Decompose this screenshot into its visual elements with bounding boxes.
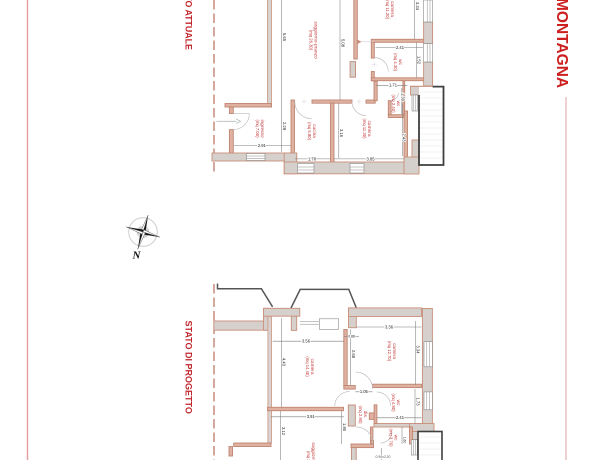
svg-text:2.29: 2.29 [282, 122, 287, 131]
svg-text:5.08: 5.08 [340, 39, 345, 48]
svg-text:1.90: 1.90 [342, 423, 347, 432]
svg-text:3.34: 3.34 [415, 2, 420, 11]
svg-text:3.56: 3.56 [302, 339, 311, 344]
svg-text:1.52: 1.52 [417, 56, 422, 65]
svg-text:MONTAGNA: MONTAGNA [553, 0, 570, 88]
svg-text:2.41: 2.41 [396, 45, 405, 50]
svg-text:1.60: 1.60 [402, 437, 406, 444]
svg-text:camera(mq 11.20): camera(mq 11.20) [385, 0, 395, 20]
svg-text:1.05: 1.05 [360, 389, 369, 394]
svg-text:0.90x2.20: 0.90x2.20 [376, 455, 391, 459]
svg-text:2.68: 2.68 [351, 350, 356, 359]
svg-text:cucina(mq 5.80): cucina(mq 5.80) [307, 122, 317, 141]
svg-text:ingresso(mq 7.00): ingresso(mq 7.00) [255, 119, 265, 138]
svg-text:1.30: 1.30 [401, 93, 406, 102]
svg-text:STATO ATTUALE: STATO ATTUALE [184, 0, 194, 50]
svg-text:N: N [132, 250, 142, 262]
svg-text:3.36: 3.36 [385, 324, 394, 329]
svg-text:3.34: 3.34 [416, 346, 421, 355]
svg-text:1.78: 1.78 [308, 156, 317, 161]
svg-text:4.43: 4.43 [282, 358, 287, 367]
svg-text:3.12: 3.12 [281, 427, 286, 436]
svg-text:1.73: 1.73 [415, 398, 420, 407]
svg-text:0.88: 0.88 [348, 335, 355, 339]
svg-text:camera(mq 11.30): camera(mq 11.30) [362, 119, 372, 140]
svg-text:3.85: 3.85 [367, 156, 376, 161]
svg-text:camera(mq 12.70): camera(mq 12.70) [387, 341, 397, 362]
svg-text:camera(mq 14.40): camera(mq 14.40) [305, 356, 315, 377]
svg-text:3.16: 3.16 [339, 129, 344, 138]
svg-text:STATO DI PROGETTO: STATO DI PROGETTO [184, 321, 194, 414]
svg-text:2.91: 2.91 [258, 143, 267, 148]
svg-text:2.43: 2.43 [401, 134, 406, 143]
svg-text:3.91: 3.91 [307, 414, 316, 419]
svg-text:1.71: 1.71 [389, 83, 398, 88]
svg-text:5.65: 5.65 [282, 33, 287, 42]
svg-text:2.41: 2.41 [396, 415, 405, 420]
